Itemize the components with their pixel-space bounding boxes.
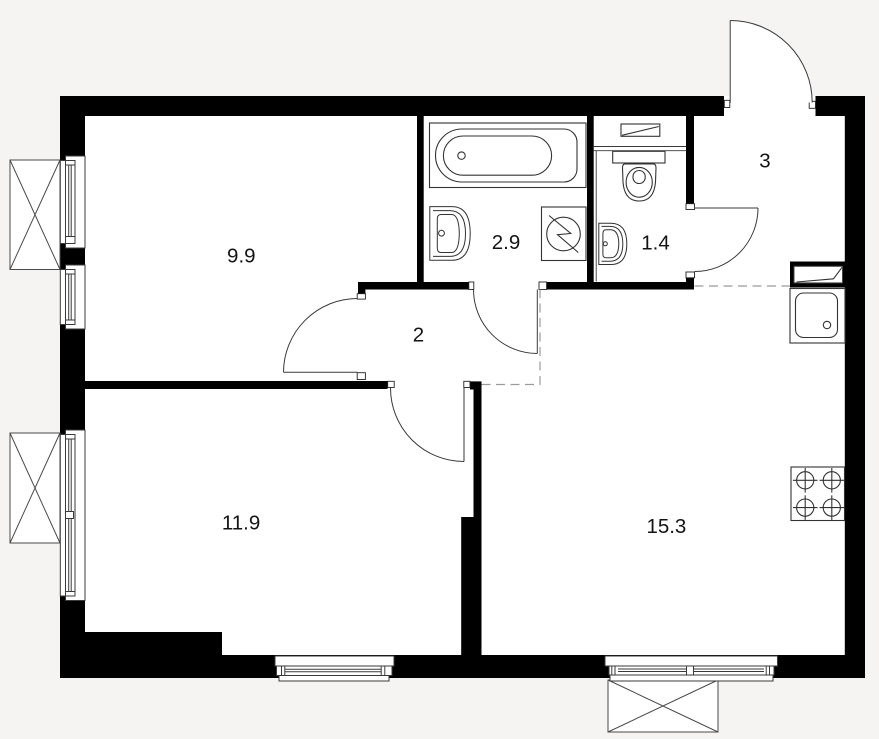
svg-text:1.4: 1.4 [641,231,670,254]
svg-text:2.9: 2.9 [492,231,521,254]
svg-text:11.9: 11.9 [222,511,260,534]
svg-text:15.3: 15.3 [646,515,686,538]
svg-text:2: 2 [413,323,424,346]
svg-text:3: 3 [759,150,770,173]
svg-text:9.9: 9.9 [227,244,256,267]
